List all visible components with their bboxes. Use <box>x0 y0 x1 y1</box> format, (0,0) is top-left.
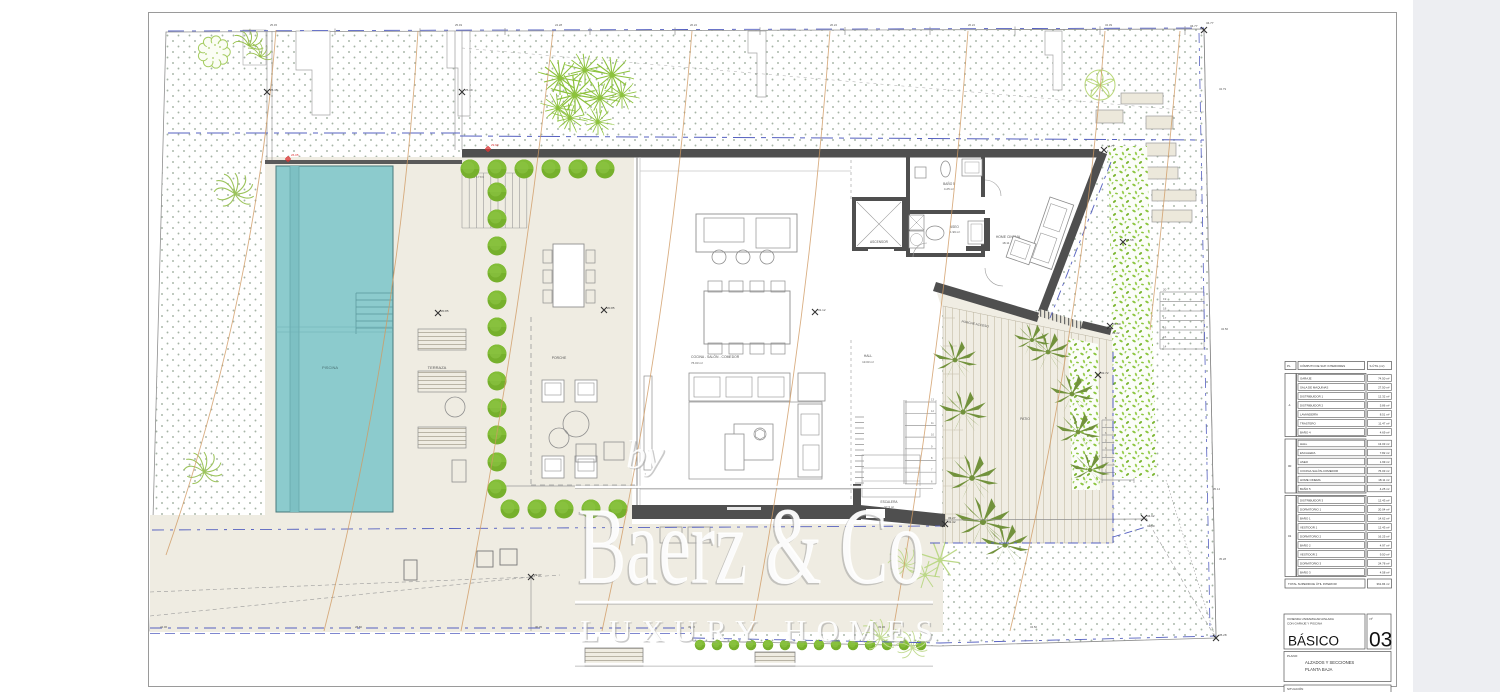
svg-text:by: by <box>626 432 664 477</box>
svg-text:34.56: 34.56 <box>1221 327 1228 331</box>
svg-text:TOTAL SUPERFICIE ÚTIL INTERIOR: TOTAL SUPERFICIE ÚTIL INTERIOR <box>1288 582 1337 586</box>
svg-text:76.03 m²: 76.03 m² <box>691 361 703 365</box>
svg-text:GARAJE: GARAJE <box>1300 376 1312 380</box>
svg-text:12.32 m²: 12.32 m² <box>1378 394 1389 398</box>
svg-text:BAÑO 5: BAÑO 5 <box>943 181 955 186</box>
svg-text:PL: PL <box>1287 364 1291 368</box>
svg-text:7.82 m²: 7.82 m² <box>1380 451 1390 455</box>
svg-text:ESCALERA: ESCALERA <box>1300 451 1315 455</box>
svg-text:19: 19 <box>1163 297 1167 301</box>
svg-text:4.97 m²: 4.97 m² <box>1380 543 1390 547</box>
svg-text:26.05: 26.05 <box>291 153 299 157</box>
svg-text:34.77: 34.77 <box>1190 24 1198 28</box>
svg-text:SITUACIÓN: SITUACIÓN <box>1287 686 1303 691</box>
svg-text:COCINA-SALÓN-COMEDOR: COCINA-SALÓN-COMEDOR <box>1300 468 1338 473</box>
svg-text:35.28: 35.28 <box>1219 557 1226 561</box>
svg-text:LUXURY HOMES: LUXURY HOMES <box>580 613 943 648</box>
svg-text:S.ÚTIL (m²): S.ÚTIL (m²) <box>1370 364 1385 368</box>
svg-text:33.42: 33.42 <box>1112 331 1120 335</box>
svg-text:HOME CINEMA: HOME CINEMA <box>1300 478 1321 482</box>
svg-text:34.39: 34.39 <box>1105 23 1112 27</box>
svg-text:8.51 m²: 8.51 m² <box>1380 412 1390 416</box>
svg-text:ASCENSOR: ASCENSOR <box>870 240 889 244</box>
svg-text:33.90: 33.90 <box>1113 322 1121 326</box>
svg-text:4.69 m²: 4.69 m² <box>1380 430 1390 434</box>
svg-text:34.79: 34.79 <box>1219 87 1226 91</box>
svg-text:20: 20 <box>1163 288 1167 292</box>
svg-text:13.03 m²: 13.03 m² <box>862 360 874 364</box>
svg-text:34.77: 34.77 <box>1107 144 1115 148</box>
svg-text:15: 15 <box>1163 335 1167 339</box>
svg-text:COCINA - SALÓN - COMEDOR: COCINA - SALÓN - COMEDOR <box>691 354 740 359</box>
svg-text:34.58: 34.58 <box>1126 238 1134 242</box>
svg-text:33.27: 33.27 <box>948 516 956 520</box>
svg-text:76.03 m²: 76.03 m² <box>1378 469 1389 473</box>
svg-text:35.14: 35.14 <box>1213 487 1220 491</box>
svg-text:DISTRIBUIDOR 2: DISTRIBUIDOR 2 <box>1300 403 1324 407</box>
svg-text:18.11 m²: 18.11 m² <box>1378 478 1389 482</box>
svg-text:29.37: 29.37 <box>534 573 542 577</box>
svg-text:26.22: 26.22 <box>830 23 837 27</box>
svg-text:DORMITORIO 2: DORMITORIO 2 <box>1300 534 1322 538</box>
svg-text:20.85: 20.85 <box>607 306 615 310</box>
svg-text:25.45: 25.45 <box>270 88 278 92</box>
svg-text:27.50 m²: 27.50 m² <box>1378 385 1389 389</box>
svg-text:PATIO: PATIO <box>1020 417 1030 421</box>
svg-text:35.28: 35.28 <box>1219 633 1227 637</box>
svg-text:361.84 m²: 361.84 m² <box>1376 582 1389 586</box>
svg-text:33.42: 33.42 <box>948 520 956 524</box>
svg-text:TRASTERO: TRASTERO <box>1300 421 1316 425</box>
svg-text:32.72: 32.72 <box>1101 371 1109 375</box>
svg-text:14: 14 <box>1163 345 1167 349</box>
svg-text:CON GARAJE Y PISCINA: CON GARAJE Y PISCINA <box>1287 622 1322 626</box>
svg-text:PISCINA: PISCINA <box>322 365 338 370</box>
svg-text:24.06: 24.06 <box>160 625 167 629</box>
svg-text:VESTIDOR 1: VESTIDOR 1 <box>1300 525 1318 529</box>
svg-text:11.47 m²: 11.47 m² <box>1378 421 1389 425</box>
svg-text:ASEO: ASEO <box>950 225 959 229</box>
svg-text:25.49: 25.49 <box>465 88 473 92</box>
svg-text:16.25 m²: 16.25 m² <box>1378 534 1389 538</box>
svg-text:25.45: 25.45 <box>270 23 277 27</box>
svg-text:30.05: 30.05 <box>535 625 542 629</box>
svg-text:9.50 m²: 9.50 m² <box>1380 552 1390 556</box>
svg-text:SALA DE MAQUINAS: SALA DE MAQUINAS <box>1300 385 1328 389</box>
svg-text:29.62: 29.62 <box>491 143 499 147</box>
svg-text:PLANO:: PLANO: <box>1287 654 1298 658</box>
svg-text:28.80: 28.80 <box>355 625 362 629</box>
svg-text:12.43 m²: 12.43 m² <box>1378 498 1389 502</box>
svg-text:PLANTA BAJA: PLANTA BAJA <box>1305 667 1333 672</box>
svg-text:12.43 m²: 12.43 m² <box>1378 525 1389 529</box>
svg-text:1.99 m²: 1.99 m² <box>1380 460 1390 464</box>
svg-text:ALZADOS Y SECCIONES: ALZADOS Y SECCIONES <box>1305 660 1354 665</box>
svg-text:17: 17 <box>1163 316 1167 320</box>
svg-text:Baerz & Co: Baerz & Co <box>578 486 925 608</box>
svg-text:DISTRIBUIDOR 3: DISTRIBUIDOR 3 <box>1300 498 1324 502</box>
svg-text:13.03 m²: 13.03 m² <box>1378 442 1389 446</box>
svg-text:74.50 m²: 74.50 m² <box>1378 376 1389 380</box>
svg-text:25.49: 25.49 <box>455 23 462 27</box>
svg-text:DISTRIBUIDOR 1: DISTRIBUIDOR 1 <box>1300 394 1324 398</box>
svg-text:26.22: 26.22 <box>690 23 697 27</box>
svg-text:VIVIENDA UNIFAMILIAR AISLADA: VIVIENDA UNIFAMILIAR AISLADA <box>1287 617 1334 621</box>
svg-text:DORMITORIO 1: DORMITORIO 1 <box>1300 507 1322 511</box>
svg-text:34.50: 34.50 <box>1030 625 1037 629</box>
svg-text:BAÑO 5: BAÑO 5 <box>1300 486 1311 491</box>
svg-text:34.50: 34.50 <box>1147 524 1155 528</box>
svg-text:26.22: 26.22 <box>968 23 975 27</box>
svg-text:LAVANDERÍA: LAVANDERÍA <box>1300 412 1318 416</box>
svg-text:BÁSICO: BÁSICO <box>1288 634 1339 649</box>
svg-text:4.58 m²: 4.58 m² <box>1380 570 1390 574</box>
svg-text:BAÑO 2: BAÑO 2 <box>1300 542 1311 547</box>
svg-text:24.78 m²: 24.78 m² <box>1378 561 1389 565</box>
svg-text:BAÑO 4: BAÑO 4 <box>1300 429 1311 434</box>
svg-text:16: 16 <box>1163 326 1167 330</box>
svg-text:HALL: HALL <box>864 354 873 358</box>
svg-text:HALL: HALL <box>1300 442 1308 446</box>
svg-text:24.28: 24.28 <box>555 23 562 27</box>
svg-text:CÓMPUTO DE SUP. INTERIORES: CÓMPUTO DE SUP. INTERIORES <box>1300 363 1345 368</box>
svg-text:ASEO: ASEO <box>1300 460 1309 464</box>
svg-text:1.99 m²: 1.99 m² <box>950 230 960 234</box>
svg-text:5.86 m²: 5.86 m² <box>1380 403 1390 407</box>
svg-text:BAÑO 1: BAÑO 1 <box>1300 515 1311 520</box>
svg-text:-1: -1 <box>1288 403 1291 407</box>
svg-text:4.25 m²: 4.25 m² <box>944 187 954 191</box>
svg-text:VESTIDOR 2: VESTIDOR 2 <box>1300 552 1318 556</box>
svg-text:03: 03 <box>1369 629 1392 652</box>
svg-text:PORCHE: PORCHE <box>552 356 567 360</box>
svg-text:20.04 m²: 20.04 m² <box>1378 507 1389 511</box>
svg-text:14.62 m²: 14.62 m² <box>1378 516 1389 520</box>
svg-text:DORMITORIO 3: DORMITORIO 3 <box>1300 561 1322 565</box>
svg-text:TERRAZA: TERRAZA <box>428 365 447 370</box>
svg-text:BAÑO 3: BAÑO 3 <box>1300 569 1311 574</box>
svg-text:18: 18 <box>1163 307 1167 311</box>
svg-text:00: 00 <box>1288 464 1292 468</box>
svg-text:01: 01 <box>1288 534 1292 538</box>
svg-text:34.77: 34.77 <box>1206 21 1214 25</box>
svg-text:4.25 m²: 4.25 m² <box>1380 487 1390 491</box>
svg-text:31.12: 31.12 <box>818 308 826 312</box>
svg-text:34.92: 34.92 <box>1147 514 1155 518</box>
svg-text:20.85: 20.85 <box>441 309 449 313</box>
